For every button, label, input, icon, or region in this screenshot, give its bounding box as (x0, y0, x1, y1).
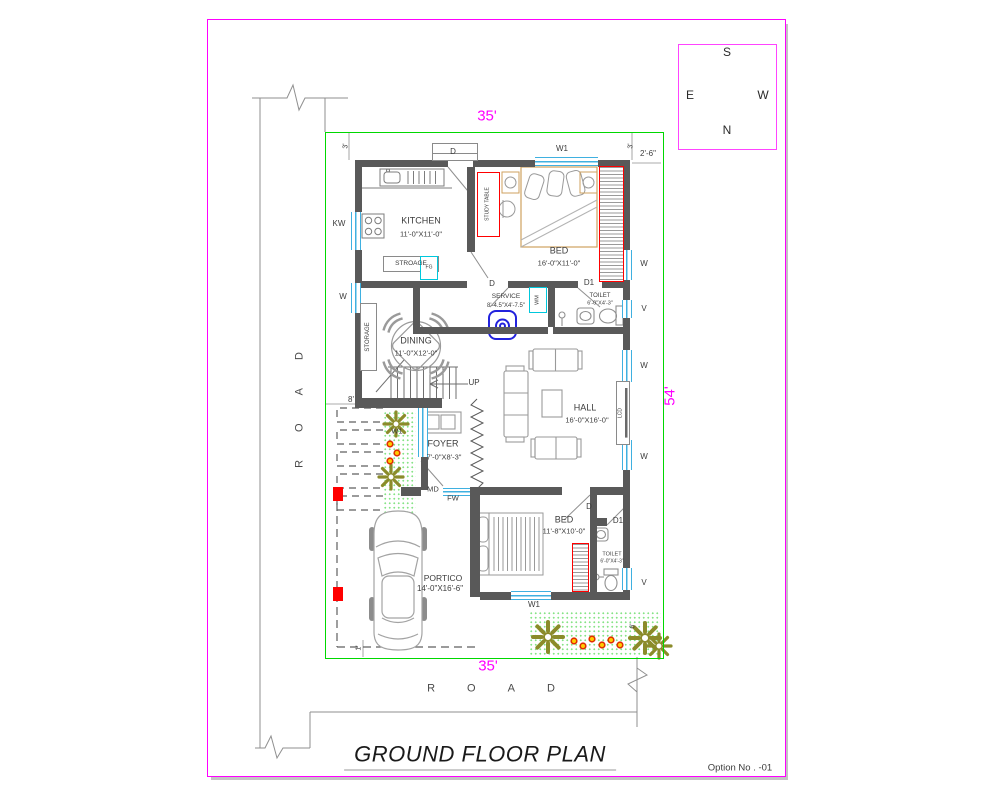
window-w-hall-upper (622, 350, 632, 382)
road-label-left: ROAD (295, 324, 306, 468)
drawing-title: GROUND FLOOR PLAN (344, 744, 616, 771)
wall (602, 281, 630, 288)
room-portico-name: PORTICO (424, 574, 463, 583)
room-bed1-size: 16'-0"X11'-0" (538, 259, 581, 267)
wall (401, 487, 421, 496)
room-dining-name: DINING (400, 337, 432, 346)
washing-machine-label: WM (535, 295, 541, 305)
storage-shelf-label: STROAGE (395, 261, 427, 268)
label-d: D (489, 280, 495, 288)
wall (467, 167, 475, 252)
storage-unit-label: STORAGE (365, 322, 371, 351)
room-toilet2-size: 6'-0"X4'-3" (600, 560, 623, 565)
wall (623, 318, 630, 350)
dim-setback-left: 3' (343, 143, 350, 148)
label-w1: W1 (391, 427, 402, 435)
dim-stair-width: 8' (348, 396, 354, 404)
window-w1-foyer (418, 408, 428, 457)
wardrobe-bed1 (599, 166, 624, 282)
vent-toilet1 (622, 300, 632, 318)
wall (548, 288, 555, 327)
dim-width-bottom: 35' (478, 659, 498, 674)
column-marker (333, 587, 343, 601)
label-w: W (640, 260, 648, 268)
wall (480, 592, 511, 600)
window-w1-bottom (511, 591, 551, 600)
up-label: UP (468, 379, 479, 387)
wall (590, 525, 597, 592)
tv-label: LCD (619, 408, 624, 418)
window-w1-top (535, 157, 598, 166)
compass-left: E (686, 89, 694, 101)
wall (420, 327, 548, 334)
room-bed1-name: BED (550, 247, 569, 256)
label-d1: D1 (613, 517, 623, 525)
wall (597, 518, 607, 526)
compass-right: W (757, 89, 768, 101)
wall (470, 487, 480, 597)
room-service-name: SERVICE (492, 294, 520, 301)
label-w: W (640, 453, 648, 461)
dim-width-top: 35' (477, 109, 497, 124)
wall (355, 250, 362, 283)
room-hall-size: 16'-0"X16'-0" (565, 416, 608, 424)
room-toilet2-name: TOILET (602, 552, 621, 558)
room-foyer-name: FOYER (427, 440, 458, 449)
compass-bottom: N (723, 124, 732, 136)
wall (358, 160, 448, 167)
label-kw: KW (333, 220, 346, 228)
dim-setback-right: 3' (628, 143, 635, 148)
fridge-label: FG (426, 266, 433, 271)
label-w: W (640, 362, 648, 370)
study-table-label: STUDY TABLE (486, 187, 491, 221)
option-number: Option No . -01 (708, 763, 772, 773)
label-d1: D1 (584, 279, 594, 287)
label-d: D (450, 148, 456, 156)
wall (590, 487, 630, 495)
wall (623, 470, 630, 568)
dim-portico-offset: 1' (356, 645, 363, 650)
dim-depth-right: 54' (663, 386, 678, 406)
vent-toilet2 (622, 568, 632, 590)
dim-offset-top-right: 2'-6" (640, 150, 656, 158)
wall (473, 160, 535, 167)
floor-plan-sheet: 35' 35' 54' 3' 3' 2'-6" 8' 1' 6' ROAD RO… (0, 0, 1000, 800)
room-kitchen-name: KITCHEN (401, 217, 441, 226)
label-w: W (339, 293, 347, 301)
wall (355, 160, 362, 212)
label-w1: W1 (528, 601, 540, 609)
wall (355, 398, 442, 408)
room-service-size: 8'-4.5"X4'-7.5" (487, 303, 525, 309)
room-bed2-size: 11'-8"X10'-0" (543, 527, 586, 535)
room-hall-name: HALL (574, 404, 597, 413)
label-fw: FW (447, 494, 459, 502)
wall (480, 487, 562, 495)
label-w1: W1 (556, 145, 568, 153)
wall (553, 327, 630, 334)
dim-garden-depth: 6' (630, 623, 637, 628)
wardrobe-bed2 (572, 543, 589, 592)
room-kitchen-size: 11'-0"X11'-0" (400, 230, 442, 238)
column-marker (333, 487, 343, 501)
wall (413, 281, 420, 334)
wall (551, 592, 630, 600)
room-toilet1-size: 6'-0"X4'-3" (587, 301, 613, 307)
road-label-bottom: ROAD (427, 684, 587, 695)
room-toilet1-name: TOILET (590, 293, 611, 299)
room-foyer-size: 7'-0"X8'-3" (427, 453, 462, 461)
room-bed2-name: BED (555, 516, 574, 525)
window-kw (351, 212, 361, 250)
compass-top: S (723, 46, 731, 58)
label-v: V (641, 305, 646, 313)
label-d: D (586, 503, 592, 511)
label-md: MD (427, 485, 439, 493)
room-dining-size: 11'-0"X12'-0" (395, 349, 438, 357)
label-v: V (641, 579, 646, 587)
wall (623, 167, 630, 250)
room-portico-size: 14'-0"X16'-6" (417, 585, 463, 593)
